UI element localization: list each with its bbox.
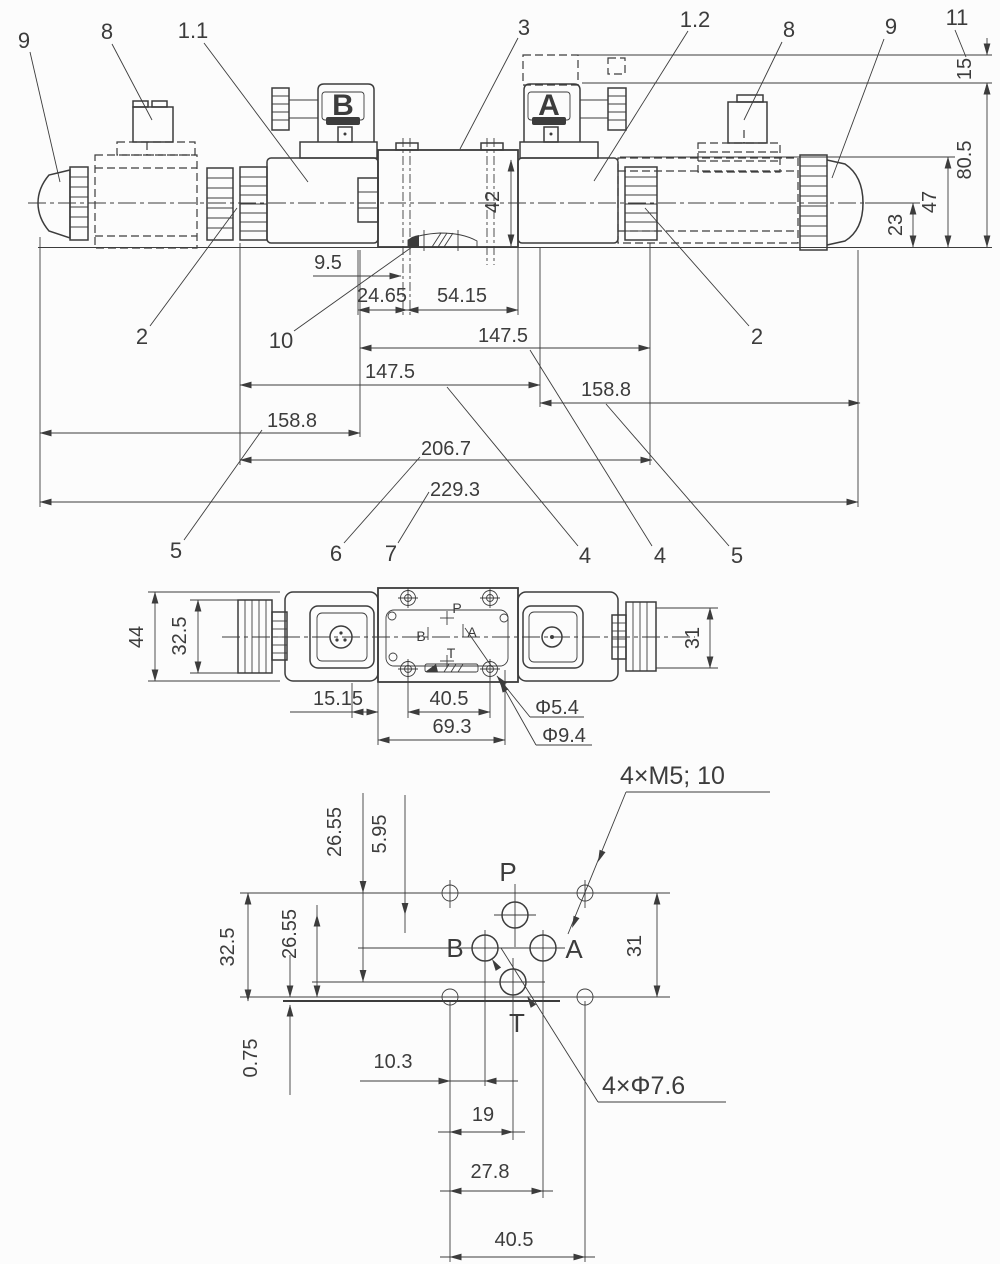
left-knurled-nuts: [207, 167, 267, 240]
pin-hole: [500, 614, 508, 622]
dim-147-5-lower: 147.5: [365, 361, 415, 383]
note-4xphi76: 4×Φ7.6: [602, 1072, 685, 1100]
right-solenoid-option: [618, 95, 798, 243]
callout-8-left: 8: [101, 19, 113, 44]
dim-47: 47: [919, 191, 941, 213]
plan-left-solenoid: [285, 592, 378, 681]
plan-port-t: T: [447, 645, 456, 661]
dim-26-55-top: 26.55: [324, 807, 346, 857]
front-extension-lines: [40, 237, 858, 507]
plan-port-p: P: [452, 600, 461, 616]
dim-69-3: 69.3: [433, 716, 472, 738]
dim-5-95: 5.95: [369, 815, 391, 854]
dim-32-5-plan: 32.5: [169, 617, 191, 656]
dim-23: 23: [885, 214, 907, 236]
callout-2-left: 2: [136, 324, 148, 349]
callout-7: 7: [385, 541, 397, 566]
callout-4-b: 4: [654, 543, 666, 568]
cable-gland-left: [272, 88, 289, 130]
dim-147-5-upper: 147.5: [478, 325, 528, 347]
dim-54-15: 54.15: [437, 285, 487, 307]
dim-15-15: 15.15: [313, 688, 363, 710]
dim-10-3: 10.3: [374, 1051, 413, 1073]
callout-6: 6: [330, 541, 342, 566]
dim-0-75: 0.75: [240, 1039, 262, 1078]
mounting-view: P B A T: [217, 762, 770, 1262]
right-solenoid: [518, 158, 618, 243]
mounting-screws: [398, 588, 500, 679]
dim-44: 44: [126, 626, 148, 648]
connector-b: B: [272, 84, 377, 158]
connector-option-outline: [523, 55, 578, 85]
callout-5-right: 5: [731, 543, 743, 568]
mount-port-t: T: [509, 1008, 525, 1038]
callout-11: 11: [946, 5, 969, 30]
dim-24-65: 24.65: [357, 285, 407, 307]
note-4xm5: 4×M5; 10: [620, 762, 725, 790]
connector-a: A: [520, 55, 626, 158]
dim-40-5-mount: 40.5: [495, 1229, 534, 1251]
callout-5-left: 5: [170, 538, 182, 563]
right-override-button: [728, 102, 767, 143]
dim-158-8-right: 158.8: [581, 379, 631, 401]
right-knurled-nut: [625, 167, 657, 240]
left-solenoid: [267, 158, 378, 243]
mount-port-p: P: [499, 857, 516, 887]
mount-dimensions: [248, 793, 657, 1257]
dim-19: 19: [472, 1104, 494, 1126]
front-view: B A: [18, 5, 992, 568]
cable-gland-right: [608, 88, 626, 130]
dim-27-8: 27.8: [471, 1161, 510, 1183]
left-knob: [38, 167, 88, 240]
technical-drawing: B A: [0, 0, 1000, 1264]
callout-1-2: 1.2: [680, 7, 711, 32]
callout-9-right: 9: [885, 14, 897, 39]
callout-8-right: 8: [783, 17, 795, 42]
front-dimensions: [40, 38, 987, 502]
dim-229-3: 229.3: [430, 479, 480, 501]
plan-port-a: A: [467, 624, 477, 640]
callout-2-right: 2: [751, 324, 763, 349]
pin-hole: [388, 612, 396, 620]
left-solenoid-option: [95, 101, 197, 248]
plan-valve-body: P B A T: [378, 588, 518, 682]
drawing-page: B A: [0, 0, 1000, 1264]
callout-9-left: 9: [18, 28, 30, 53]
pin-hole: [389, 653, 397, 661]
dim-31-mount: 31: [624, 935, 646, 957]
dim-dia-5-4: Φ5.4: [535, 697, 579, 719]
callout-4-a: 4: [579, 543, 591, 568]
left-override-button: [133, 107, 173, 142]
callout-10: 10: [269, 328, 293, 353]
dim-31-plan: 31: [682, 627, 704, 649]
dim-158-8-left: 158.8: [267, 410, 317, 432]
dim-40-5-plan: 40.5: [430, 688, 469, 710]
dim-206-7: 206.7: [421, 438, 471, 460]
plan-port-b: B: [416, 628, 425, 644]
plan-left-knob: [238, 600, 287, 673]
plan-view: P B A T: [126, 588, 718, 747]
plan-right-solenoid: [518, 592, 656, 681]
dim-26-55-left: 26.55: [279, 909, 301, 959]
dim-dia-9-4: Φ9.4: [542, 725, 586, 747]
callout-1-1: 1.1: [178, 18, 209, 43]
dim-9-5: 9.5: [314, 252, 342, 274]
dim-80-5: 80.5: [954, 141, 976, 180]
mount-port-b: B: [446, 933, 463, 963]
dim-42: 42: [482, 191, 504, 213]
mount-port-a: A: [565, 934, 583, 964]
dim-32-5-mount: 32.5: [217, 928, 239, 967]
right-knob: [800, 155, 863, 250]
callout-3: 3: [518, 15, 530, 40]
dim-15: 15: [954, 58, 976, 80]
